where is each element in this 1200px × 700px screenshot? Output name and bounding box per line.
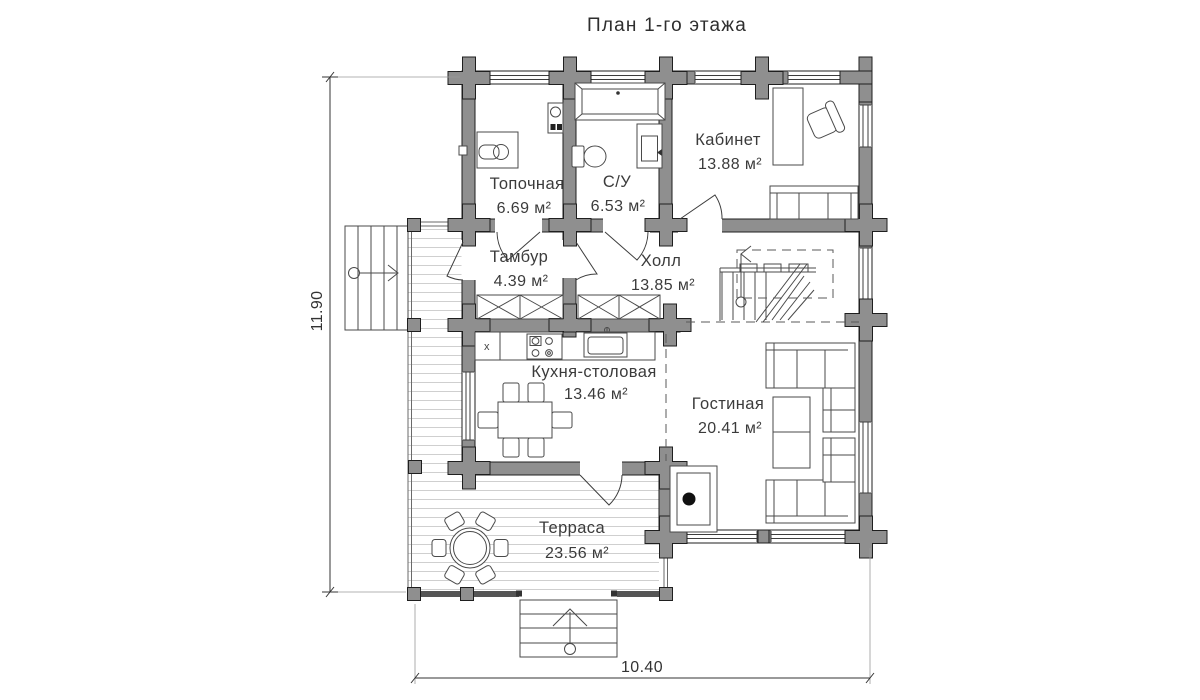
room-area: 13.85 м²	[631, 277, 695, 294]
page-title: План 1-го этажа	[587, 15, 747, 36]
wall-boiler-unit	[548, 103, 563, 133]
room-label-bathroom: С/У 6.53 м²	[591, 173, 646, 215]
room-name: Кухня-столовая	[531, 363, 656, 381]
room-name: Гостиная	[692, 395, 764, 413]
chair	[503, 438, 519, 457]
room-area: 6.69 м²	[497, 200, 552, 217]
room-name: С/У	[603, 173, 631, 191]
upper-flight-dashed	[737, 250, 833, 298]
chair	[432, 540, 446, 557]
chair	[528, 383, 544, 402]
room-label-boiler: Топочная 6.69 м²	[490, 175, 565, 217]
room-area: 13.46 м²	[564, 386, 628, 403]
side-steps	[345, 226, 408, 330]
room-name: Терраса	[539, 519, 606, 537]
floor-plan-canvas: x	[0, 0, 1200, 700]
room-area: 13.88 м²	[698, 156, 762, 173]
chair	[552, 412, 572, 428]
dimension-width-label: 10.40	[621, 659, 663, 676]
chair	[478, 412, 498, 428]
window-south-2	[771, 531, 848, 543]
staircase	[720, 246, 833, 322]
room-label-vestibule: Тамбур 4.39 м²	[490, 248, 549, 290]
stair-break-line	[756, 264, 807, 322]
bathroom-fixtures	[572, 83, 665, 168]
chair	[503, 383, 519, 402]
room-name: Холл	[641, 252, 682, 270]
window-east-1	[860, 105, 872, 147]
living-room-furniture	[670, 343, 855, 532]
office-sofa	[770, 186, 858, 219]
room-label-living: Гостиная 20.41 м²	[692, 395, 764, 437]
hall-closet	[578, 295, 660, 319]
round-table	[450, 528, 490, 568]
chair	[494, 540, 508, 557]
vestibule-hall-door	[576, 242, 597, 280]
dining-table-set	[478, 383, 572, 457]
room-label-office: Кабинет 13.88 м²	[695, 131, 762, 173]
window-west-1	[463, 372, 475, 440]
coffee-table	[773, 397, 810, 468]
vestibule-closet	[477, 295, 563, 319]
toilet	[572, 146, 606, 167]
window-mullion	[758, 530, 769, 543]
office-chair	[804, 100, 846, 143]
window-east-3	[860, 422, 872, 493]
room-name: Кабинет	[695, 131, 761, 149]
fridge-marker: x	[484, 341, 490, 353]
room-label-hall: Холл 13.85 м²	[631, 252, 695, 294]
window-north-1	[483, 72, 552, 84]
dining-table	[498, 402, 552, 438]
room-label-kitchen: Кухня-столовая 13.46 м²	[531, 363, 656, 403]
room-name: Топочная	[490, 175, 565, 193]
room-area: 4.39 м²	[494, 273, 549, 290]
office-furniture	[770, 88, 858, 219]
room-name: Тамбур	[490, 248, 548, 266]
window-north-2	[590, 72, 652, 84]
room-area: 20.41 м²	[698, 420, 762, 437]
desk	[773, 88, 803, 165]
terrace-steps	[520, 600, 617, 657]
chair	[528, 438, 544, 457]
window-east-2	[860, 248, 872, 302]
entry-arrow-icon	[360, 265, 398, 281]
room-area: 23.56 м²	[545, 545, 609, 562]
bathtub	[575, 83, 665, 120]
room-area: 6.53 м²	[591, 198, 646, 215]
dimension-height-label: 11.90	[309, 291, 326, 332]
office-door	[680, 195, 722, 219]
fireplace	[670, 466, 717, 532]
washbasin-cabinet	[637, 124, 662, 168]
floor-plan-page: x	[0, 0, 1200, 700]
wall-vent	[459, 146, 467, 155]
